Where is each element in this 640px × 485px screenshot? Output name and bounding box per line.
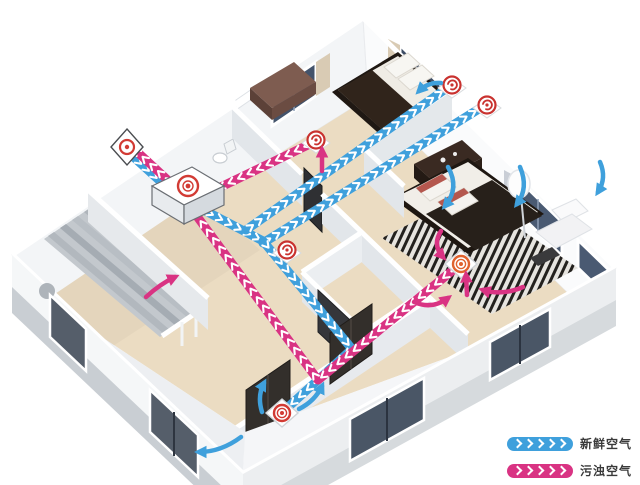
chevron-icon [546,439,556,449]
chevron-icon [524,466,534,476]
chevron-icon [535,439,545,449]
chevron-icon [546,466,556,476]
chevron-icon [524,439,534,449]
legend-row-fresh-air: 新鲜空气 [507,435,632,452]
chevron-icon [535,466,545,476]
chevron-icon [513,466,523,476]
exhaust-air-label: 污浊空气 [580,462,632,479]
fresh-air-chevron-pill [507,437,573,451]
chevron-icon [557,466,567,476]
house-illustration [0,0,640,485]
chevron-icon [557,439,567,449]
legend-row-exhaust-air: 污浊空气 [507,462,632,479]
illustration-stage: 新鲜空气 污浊空气 [0,0,640,485]
fresh-air-label: 新鲜空气 [580,435,632,452]
chevron-icon [513,439,523,449]
exhaust-air-chevron-pill [507,464,573,478]
airflow-master-lamp [598,162,603,192]
legend: 新鲜空气 污浊空气 [507,435,632,479]
airflow-master-exhaust-up [466,275,467,295]
